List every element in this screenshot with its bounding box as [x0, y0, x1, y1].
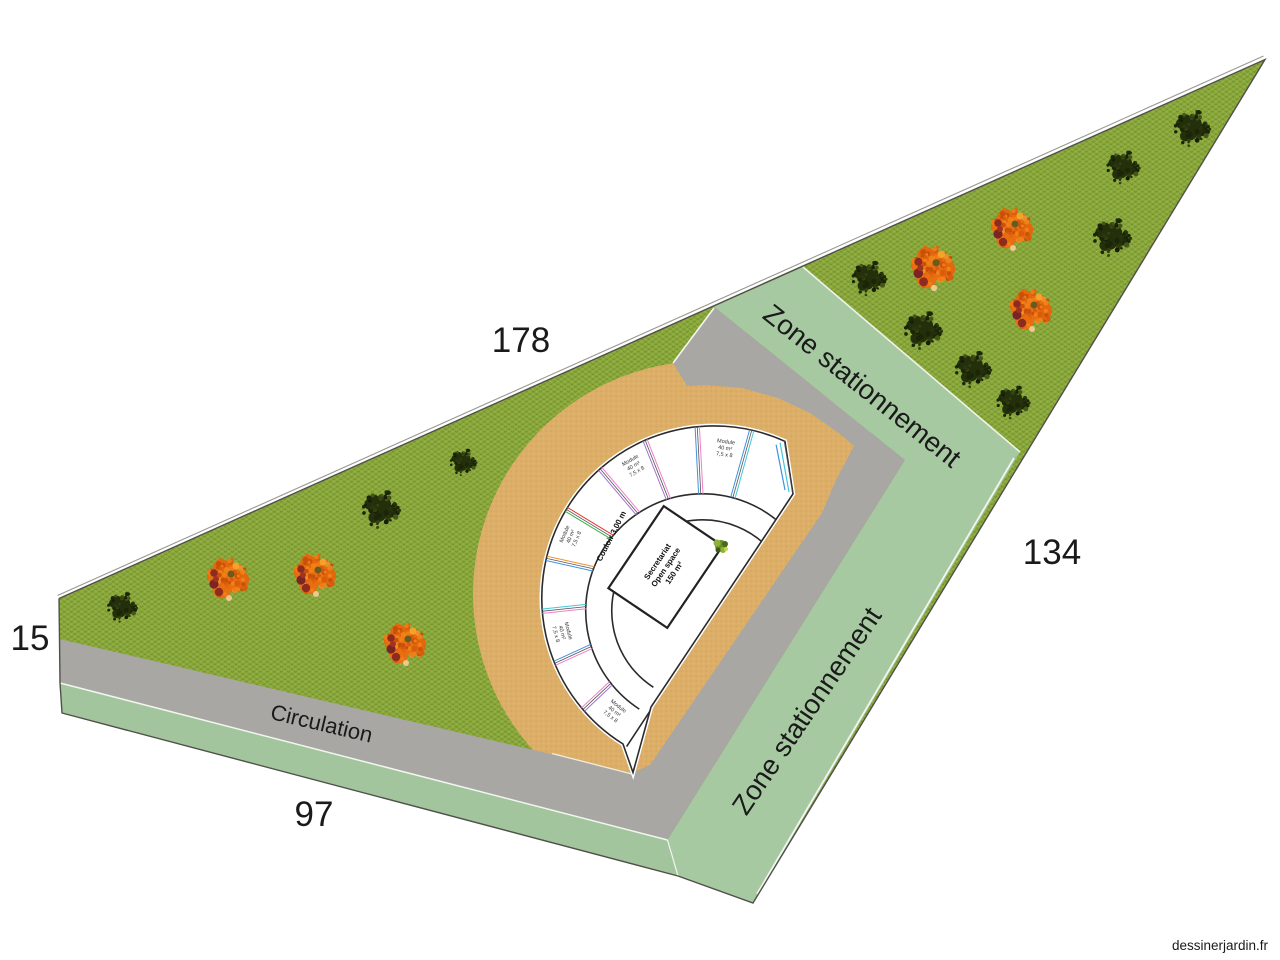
svg-text:134: 134 [1023, 533, 1081, 572]
svg-text:dessinerjardin.fr: dessinerjardin.fr [1172, 938, 1269, 953]
svg-text:178: 178 [492, 321, 550, 360]
svg-text:97: 97 [295, 795, 334, 834]
svg-text:15: 15 [11, 619, 50, 658]
